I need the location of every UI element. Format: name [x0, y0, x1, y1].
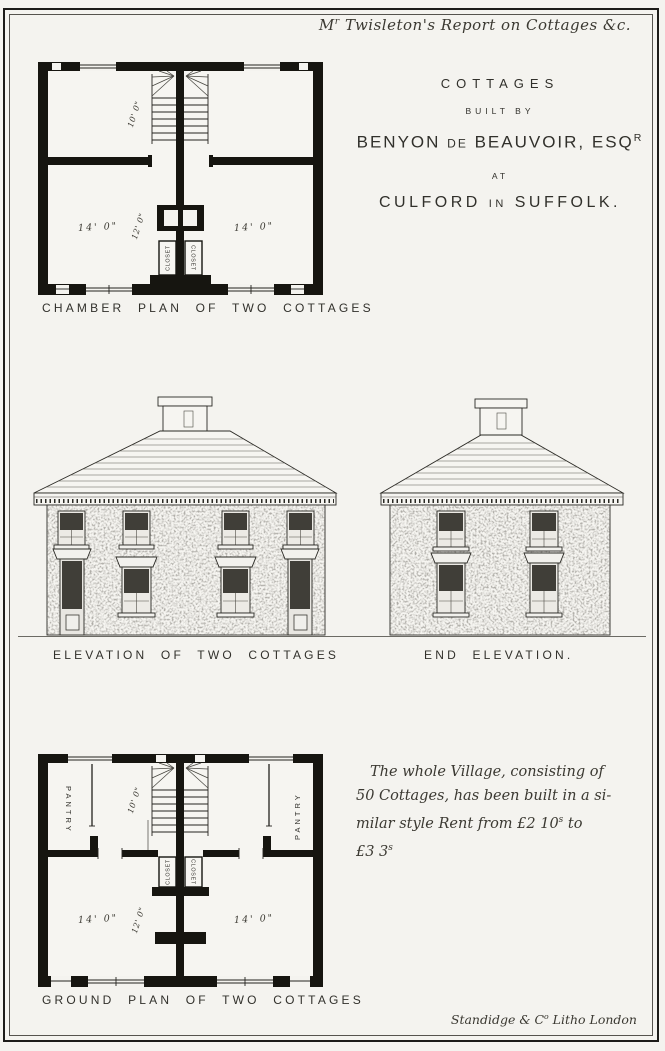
chamber-closet-left-label: CLOSET [166, 245, 172, 271]
title-at: AT [352, 171, 648, 181]
ground-closet-right-label: CLOSET [190, 859, 196, 885]
title-cottages: COTTAGES [352, 76, 648, 91]
chamber-right-room-dim: 14' 0" [234, 221, 275, 234]
end-chimney [475, 399, 527, 435]
front-left-lower-window [116, 557, 157, 617]
chamber-left-room-dim: 14' 0" [78, 221, 119, 234]
end-elevation-caption: END ELEVATION. [424, 648, 573, 662]
ground-pantry-left-label: PANTRY [64, 786, 73, 834]
front-chimney [158, 397, 212, 431]
plate-header: Mr Twisleton's Report on Cottages &c. [319, 16, 631, 34]
title-place: CULFORD IN SUFFOLK. [352, 194, 648, 212]
ground-closet-left-label: CLOSET [166, 859, 172, 885]
front-elevation-drawing [22, 393, 348, 645]
ground-plan-caption: GROUND PLAN OF TWO COTTAGES [42, 993, 364, 1007]
front-right-lower-window [215, 557, 256, 617]
plate-page: Mr Twisleton's Report on Cottages &c. CO… [0, 0, 665, 1051]
ground-pantry-right-label: PANTRY [293, 792, 302, 840]
note-line-1: The whole Village, consisting of [356, 760, 652, 784]
chamber-plan-drawing: CLOSET CLOSET 10' 0" 12' [38, 62, 323, 295]
front-roof [34, 431, 336, 493]
title-built-by: BUILT BY [352, 106, 648, 116]
ground-plan-drawing: CLOSET CLOSET [38, 752, 323, 992]
end-roof [381, 435, 623, 493]
ground-fireplace [155, 932, 206, 944]
end-elevation-drawing [375, 393, 630, 645]
village-note: The whole Village, consisting of 50 Cott… [356, 760, 652, 864]
end-cornice [381, 493, 623, 505]
ground-right-room-dim: 14' 0" [234, 913, 275, 926]
front-elevation-caption: ELEVATION OF TWO COTTAGES [53, 648, 339, 662]
chamber-plan-caption: CHAMBER PLAN OF TWO COTTAGES [42, 301, 374, 315]
note-line-3: milar style Rent from £2 10s to [356, 808, 652, 836]
printer-credit: Standidge & Co Litho London [451, 1012, 637, 1027]
note-line-4: £3 3s [356, 836, 652, 864]
title-block: COTTAGES BUILT BY BENYON DE BEAUVOIR, ES… [352, 76, 648, 212]
chamber-closet-right-label: CLOSET [190, 245, 196, 271]
note-line-2: 50 Cottages, has been built in a si- [356, 784, 652, 808]
front-cornice [34, 493, 336, 505]
title-owner: BENYON DE BEAUVOIR, ESQR [352, 132, 648, 153]
elevation-ground-line [18, 636, 646, 637]
ground-left-room-dim: 14' 0" [78, 913, 119, 926]
